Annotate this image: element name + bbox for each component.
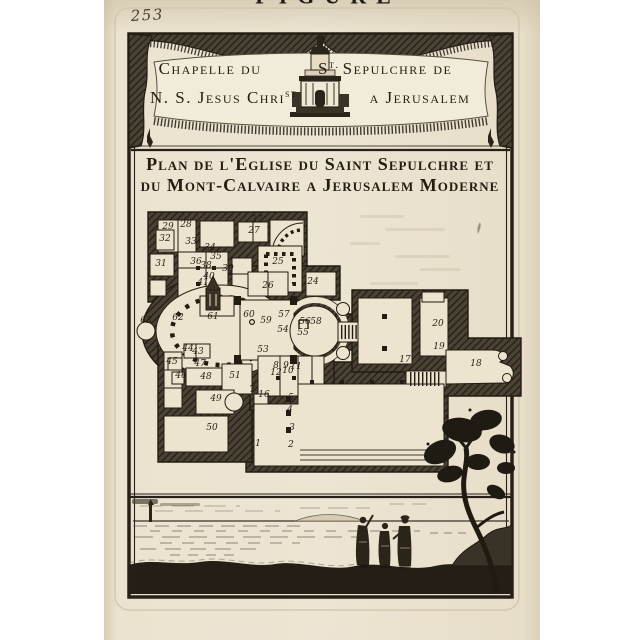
plan-room-number: 54 [277,325,289,335]
plan-room-number: 4 [286,405,293,415]
plan-room-number: 20 [431,319,444,329]
plan-room-number: 53 [257,345,269,355]
plan-room-number: 60 [243,310,255,320]
plan-room-number: 35 [210,252,222,262]
plan-room-number: 55 [297,328,309,338]
plan-room-number: 50 [206,423,218,433]
plan-room-number: 19 [433,342,445,352]
plan-room-number: 26 [261,281,274,291]
plan-room-number: 32 [159,234,171,244]
banner-christ-superscript: st [285,88,297,100]
plan-room-number: 59 [260,316,272,326]
banner-line2-left: N. S. Jesus Christ [150,88,297,107]
plan-room-number: 27 [247,226,260,236]
plan-title-line2: du Mont-Calvaire a Jerusalem Moderne [141,175,500,195]
page-number: 253 [129,5,164,25]
dark-cloud [132,499,158,504]
plan-room-number: 12 [270,368,282,378]
cropped-header-text: FIGURE [255,0,401,9]
plan-room-number: 3 [289,423,295,433]
plan-room-number: 47 [193,359,206,369]
plan-room-number: 16 [258,390,270,400]
plan-room-number: 33 [185,237,197,247]
plan-room-number: 49 [209,394,222,404]
plan-room-number: 24 [306,277,319,287]
plan-room-number: 28 [179,220,192,230]
plan-room-number: 56 [299,317,311,327]
plan-room-number: 25 [271,257,284,267]
plan-room-number: 37 [251,215,263,225]
plan-room-number: 63 [140,316,152,326]
banner-line2-left-main: N. S. Jesus Chri [150,88,285,107]
plan-room-number: 38 [200,261,212,271]
plan-room-number: 17 [399,355,411,365]
banner-st-superscript: t. [329,59,340,71]
antique-print-photo: FIGURE 253 [0,0,640,640]
plan-room-number: 29 [161,222,174,232]
plan-room-number: 61 [207,312,218,322]
banner-st-initial: S [318,59,329,78]
plan-room-number: 7 [249,385,255,395]
plan-room-number: 31 [155,259,166,269]
plan-room-number: 1 [255,439,261,449]
banner-line1-right-rest: Sepulchre de [343,59,453,78]
plan-room-number: 43 [191,347,204,357]
plan-room-number: 39 [222,264,234,274]
plan-room-number: 5 [288,393,294,403]
plan-room-number: 2 [287,440,294,450]
plan-title-line1: Plan de l'Eglise du Saint Sepulchre et [146,154,494,174]
plan-room-number: 41 [196,278,208,288]
dark-cloud-2 [160,503,200,506]
banner-line1-left: Chapelle du [159,59,262,78]
banner-line2-right: a Jerusalem [370,88,471,107]
plan-room-number: 58 [310,317,322,327]
plan-room-number: 46 [174,371,187,381]
plan-room-number: 62 [172,313,184,323]
plan-room-number: 48 [199,372,212,382]
plan-room-number: 18 [470,359,482,369]
plan-room-number: 57 [278,310,290,320]
plan-room-number: 51 [229,371,240,381]
plan-room-number: 10 [282,366,294,376]
chapel-door [315,90,325,107]
title-cartouche: Plan de l'Eglise du Saint Sepulchre et d… [141,154,500,195]
plan-room-number: 45 [165,357,178,367]
